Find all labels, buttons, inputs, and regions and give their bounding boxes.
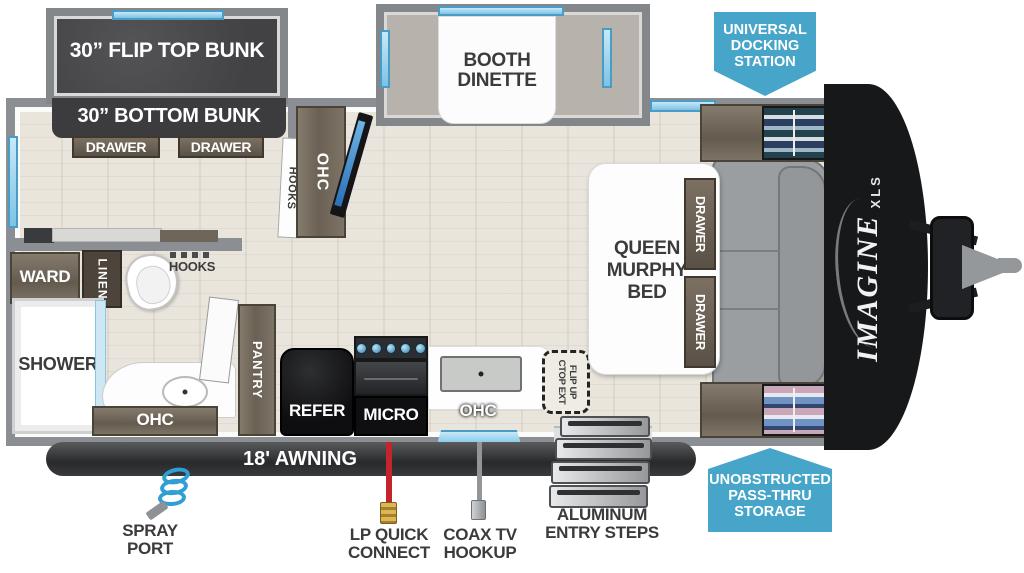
- coax-tv-hookup-label: COAX TV HOOKUP: [428, 526, 532, 562]
- bunk-drawer-left: DRAWER: [72, 136, 160, 158]
- entry-step-3: [551, 461, 650, 484]
- entry-steps-label: ALUMINUM ENTRY STEPS: [540, 506, 664, 542]
- oven: [354, 360, 428, 396]
- linen-label: LINEN: [96, 259, 109, 300]
- bunk-drawer-left-label: DRAWER: [74, 140, 158, 155]
- micro-label: MICRO: [356, 406, 426, 424]
- dinette-table: BOOTH DINETTE: [438, 16, 556, 124]
- spray-port-label: SPRAY PORT: [100, 522, 200, 558]
- bath-sink-icon: [162, 376, 208, 408]
- lp-fitting-icon: [380, 502, 397, 524]
- spray-nozzle-icon: [145, 501, 168, 521]
- sink-drain-dot: [479, 372, 484, 377]
- ward-label: WARD: [12, 268, 78, 286]
- pantry-label: PANTRY: [250, 341, 264, 399]
- desk-dark-block: [24, 228, 54, 243]
- entry-step-2: [555, 438, 652, 460]
- brand-name: IMAGINE: [851, 214, 885, 361]
- lp-quick-connect-label: LP QUICK CONNECT: [335, 526, 443, 562]
- window-dinette-right: [602, 28, 612, 88]
- awning-label: 18' AWNING: [150, 449, 450, 470]
- entry-step-1: [560, 416, 650, 437]
- window-left-wall: [8, 136, 18, 228]
- brand-sub: XLS: [868, 174, 883, 208]
- hooks-rail-icon: [170, 252, 214, 258]
- coax-connector-icon: [471, 500, 486, 520]
- burners-icon: [356, 338, 426, 358]
- desk-counter: [52, 228, 162, 242]
- bed-drawer-upper: DRAWER: [684, 178, 716, 270]
- ohc-bath-label: OHC: [94, 411, 216, 429]
- shower: SHOWER: [12, 298, 104, 434]
- bunk-drawer-right-label: DRAWER: [180, 140, 262, 155]
- flip-up-ctop-label: FLIP UP CTOP EXT: [555, 360, 577, 405]
- refer-label: REFER: [282, 402, 352, 420]
- entertainment-cabinet: OHC: [296, 106, 346, 238]
- bed-drawer-lower: DRAWER: [684, 276, 716, 368]
- bath-ohc-cabinet: OHC: [92, 406, 218, 436]
- universal-docking-station-badge: UNIVERSAL DOCKING STATION: [714, 12, 816, 96]
- stove-top: [354, 336, 428, 360]
- booth-dinette-label: BOOTH DINETTE: [439, 51, 555, 91]
- sofa-backrest: [778, 166, 826, 388]
- flip-up-ctop-ext: FLIP UP CTOP EXT: [542, 350, 590, 414]
- hooks-bath-label: HOOKS: [162, 260, 222, 274]
- oven-handle: [364, 378, 418, 380]
- window-bunk-slide: [112, 10, 224, 20]
- floorplan-scene: 30” FLIP TOP BUNK 30” BOTTOM BUNK DRAWER…: [0, 0, 1024, 573]
- bunk-drawer-right: DRAWER: [178, 136, 264, 158]
- wardrobe-bottom-clothes: [762, 384, 826, 436]
- ohc-kitchen-label: OHC: [448, 402, 508, 420]
- wardrobe-top-clothes: [762, 106, 826, 160]
- window-dinette-left: [380, 30, 390, 88]
- pantry-cabinet: PANTRY: [238, 304, 276, 436]
- hitch-ball-mount: [998, 258, 1022, 273]
- lp-line-icon: [386, 442, 392, 504]
- bottom-bunk-label: 30” BOTTOM BUNK: [56, 106, 282, 127]
- ohc-entertainment-label: OHC: [313, 153, 330, 192]
- refrigerator: REFER: [280, 348, 354, 436]
- coax-line-icon: [477, 442, 482, 504]
- sofa-cushion-line: [716, 250, 780, 252]
- bed-drawer-upper-label: DRAWER: [693, 196, 707, 252]
- faucet-dot: [183, 390, 188, 395]
- bed-drawer-lower-label: DRAWER: [693, 294, 707, 350]
- window-dinette-top: [438, 6, 564, 16]
- brand-logo: IMAGINE XLS: [838, 158, 898, 378]
- flip-top-bunk-label: 30” FLIP TOP BUNK: [56, 40, 278, 62]
- wardrobe-cabinet: WARD: [10, 252, 80, 304]
- desk-wood-shelf: [160, 230, 218, 242]
- microwave: MICRO: [354, 396, 428, 436]
- kitchen-sink-icon: [440, 356, 522, 392]
- shower-label: SHOWER: [15, 355, 101, 374]
- pass-thru-storage-badge: UNOBSTRUCTED PASS-THRU STORAGE: [708, 448, 832, 532]
- sofa-cushion-line2: [716, 308, 780, 310]
